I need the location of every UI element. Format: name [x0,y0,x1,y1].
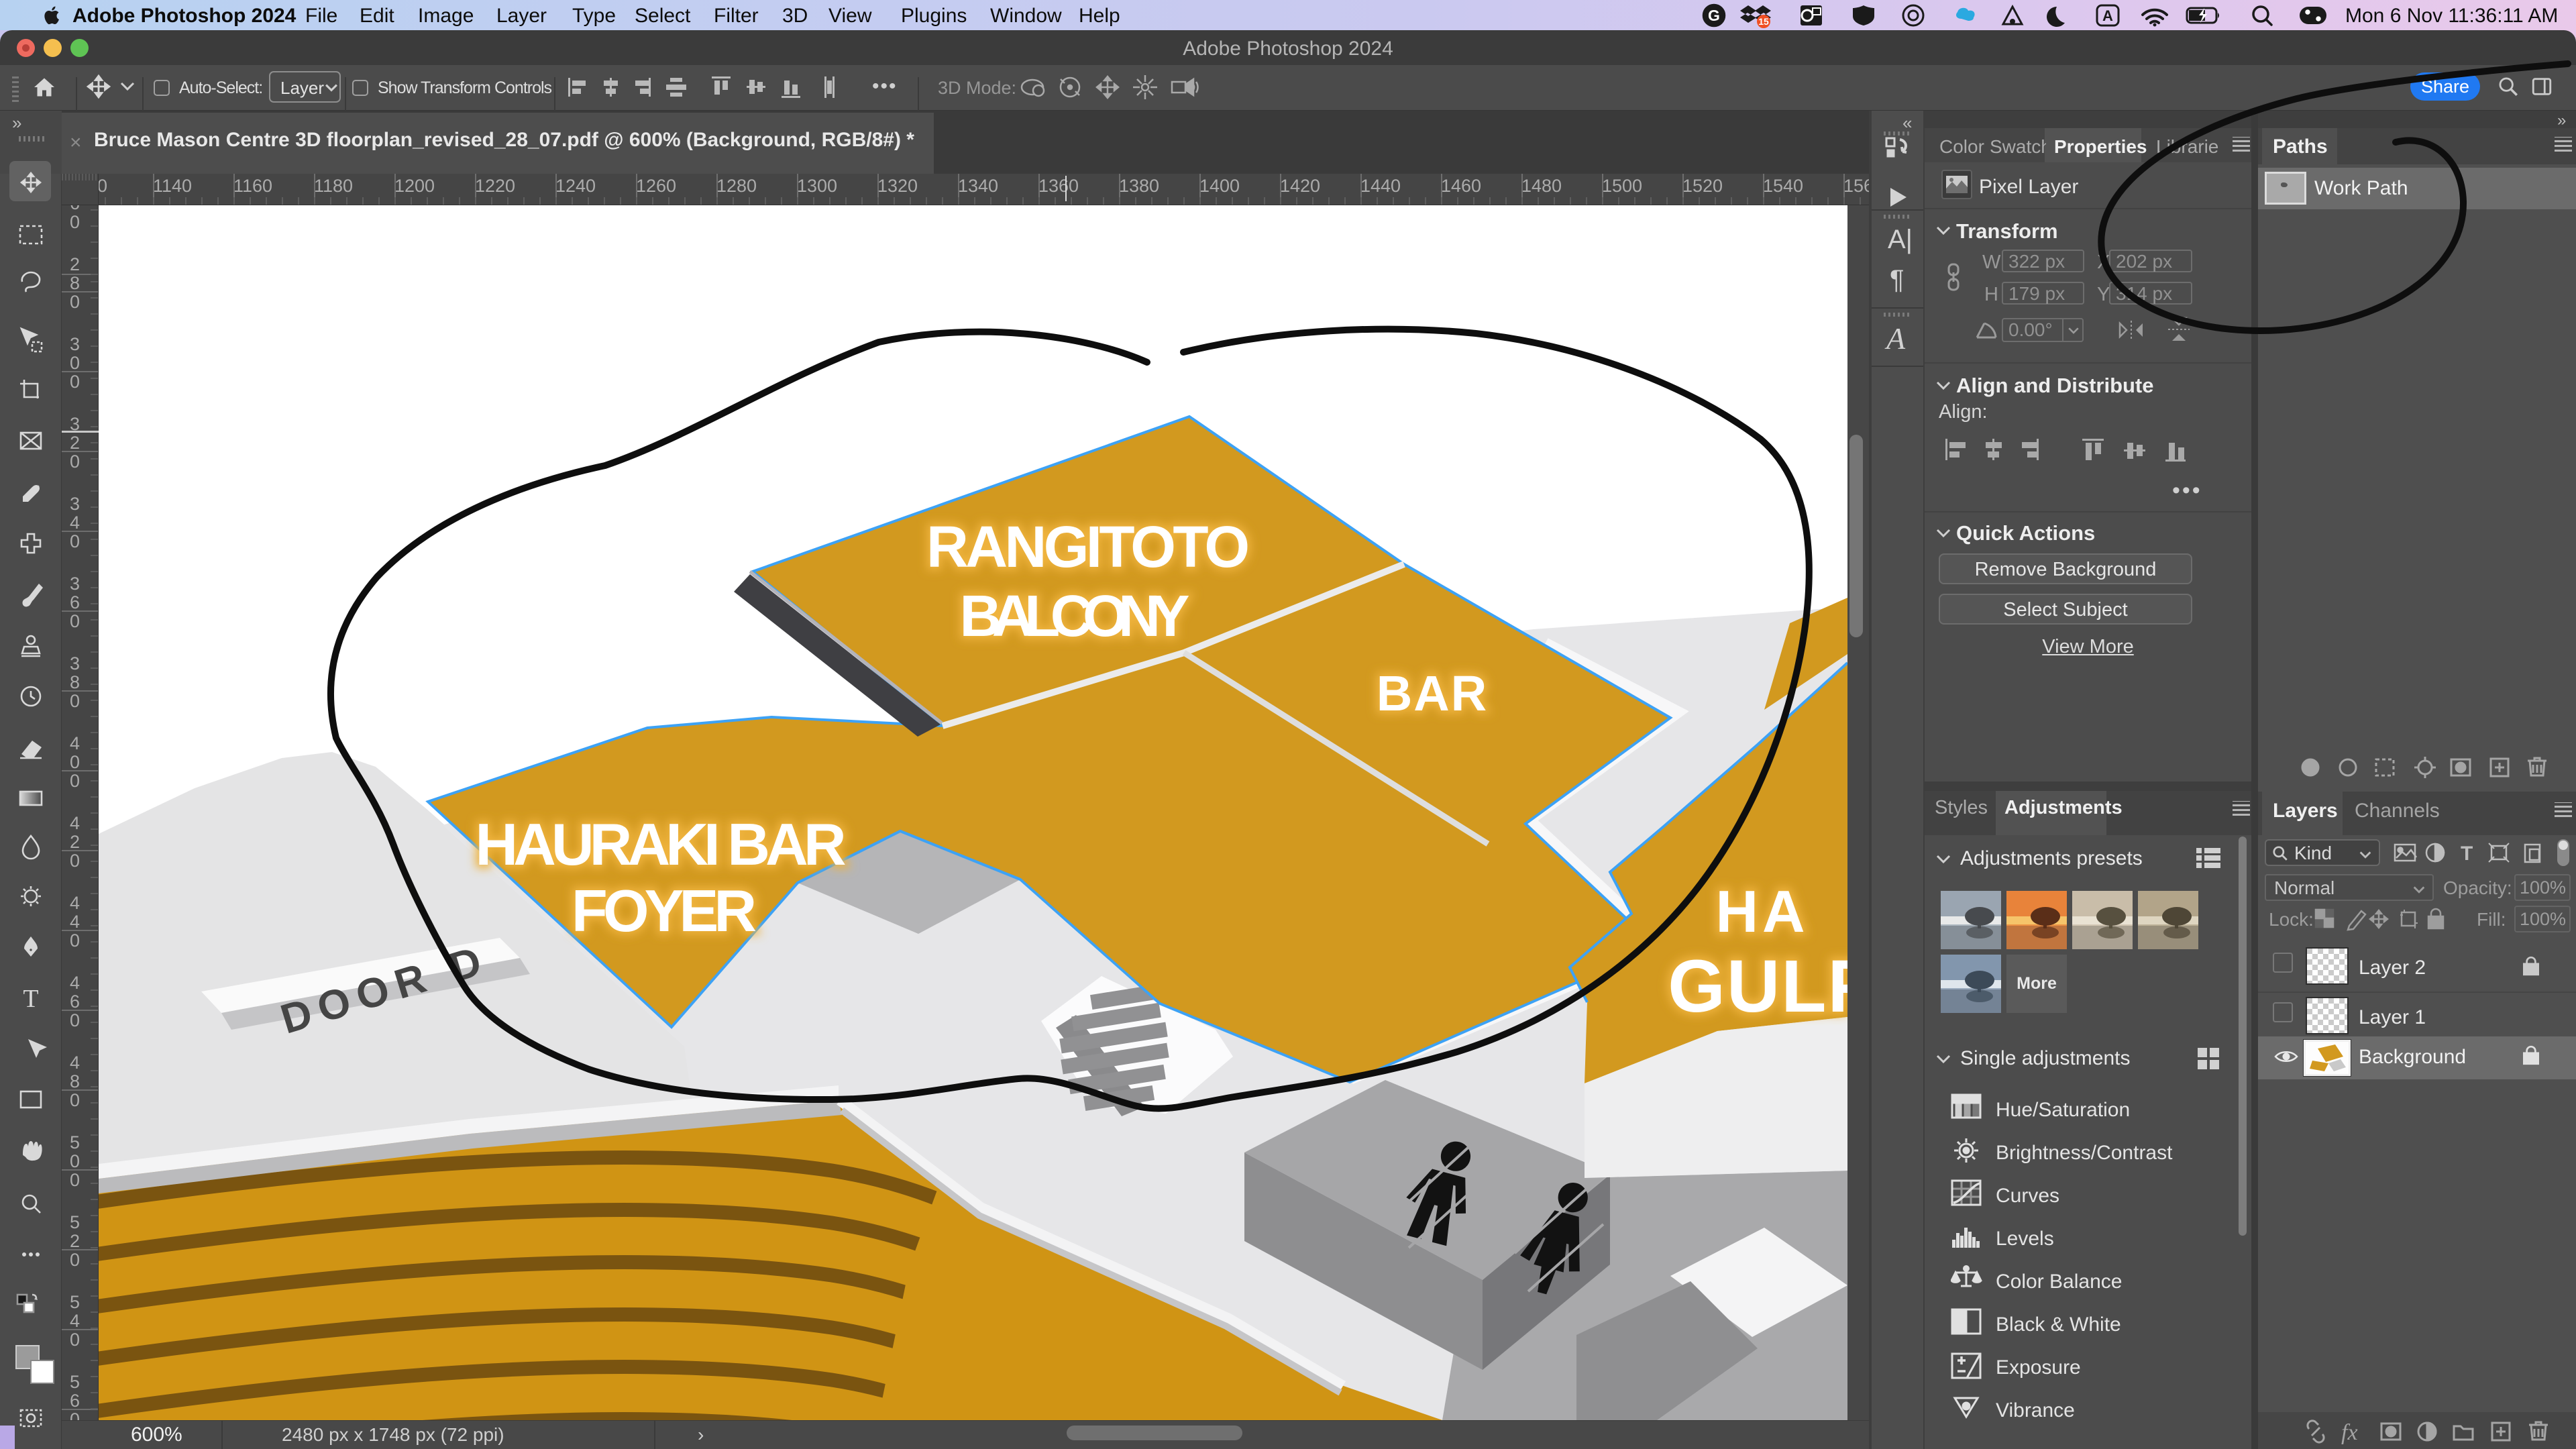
svg-text:T: T [2461,843,2473,864]
svg-text:¶: ¶ [1890,265,1904,294]
svg-text:G: G [1708,7,1720,24]
svg-text:HAURAKI BAR: HAURAKI BAR [476,811,847,877]
svg-text:FOYER: FOYER [572,877,757,944]
svg-text:T: T [23,985,38,1013]
svg-text:A: A [2102,7,2113,24]
svg-text:BALCONY: BALCONY [960,584,1190,649]
svg-text:A: A [1884,321,1906,356]
svg-text:HA: HA [1715,878,1809,945]
svg-text:15: 15 [1758,16,1769,27]
svg-text:A|: A| [1888,225,1913,254]
svg-text:fx: fx [2341,1420,2358,1445]
svg-text:RANGITOTO: RANGITOTO [926,515,1250,580]
svg-text:GULF: GULF [1668,945,1847,1028]
svg-text:BAR: BAR [1377,665,1488,721]
